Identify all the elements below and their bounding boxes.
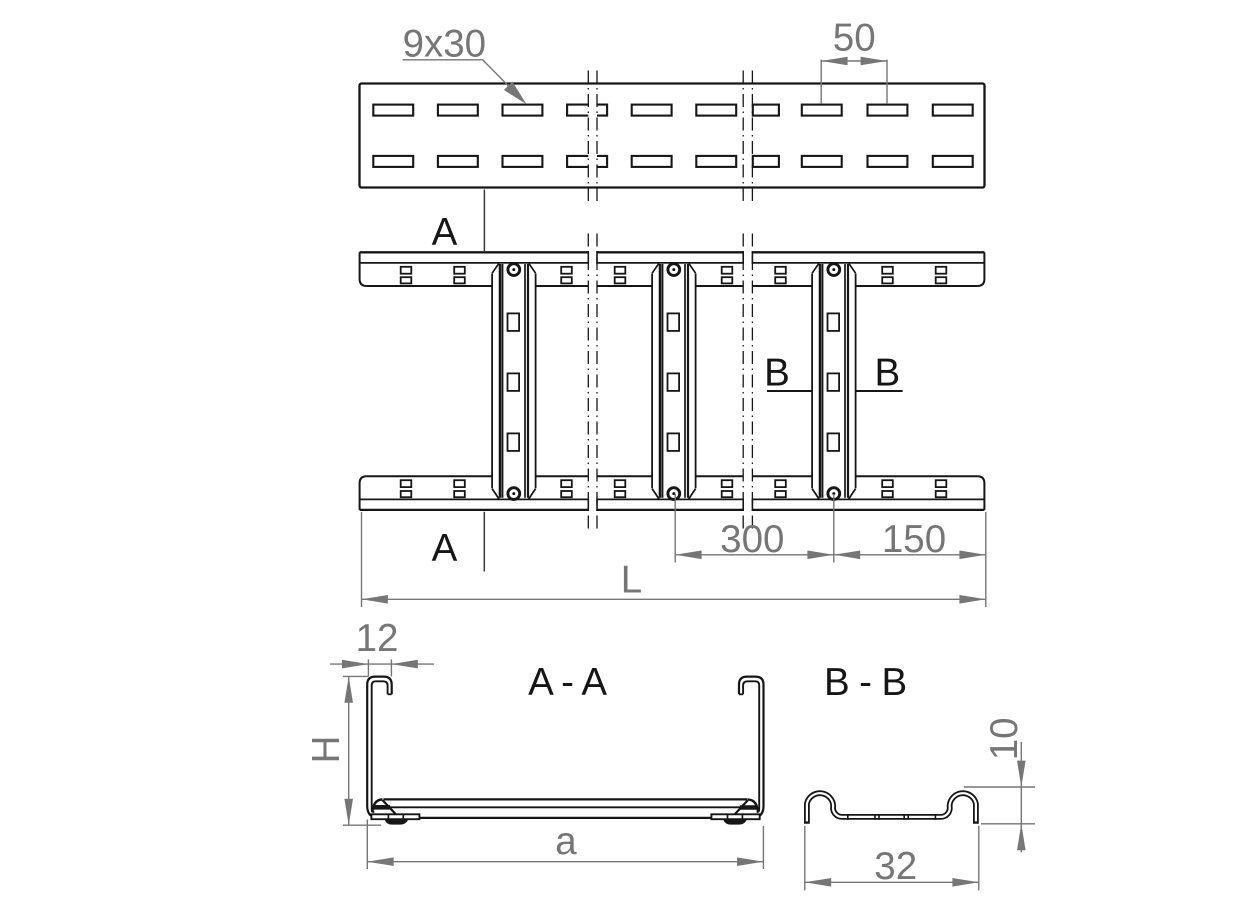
svg-text:300: 300 bbox=[720, 518, 784, 561]
svg-text:9x30: 9x30 bbox=[403, 23, 487, 66]
svg-text:A - A: A - A bbox=[528, 661, 607, 704]
svg-text:a: a bbox=[555, 820, 577, 863]
svg-text:B: B bbox=[874, 352, 900, 395]
svg-text:12: 12 bbox=[356, 617, 399, 660]
svg-text:L: L bbox=[621, 559, 642, 602]
svg-text:10: 10 bbox=[983, 717, 1026, 760]
svg-text:B - B: B - B bbox=[824, 661, 907, 704]
svg-text:32: 32 bbox=[874, 845, 917, 888]
svg-text:A: A bbox=[432, 527, 458, 570]
svg-text:50: 50 bbox=[833, 17, 876, 60]
svg-text:H: H bbox=[305, 736, 348, 764]
svg-text:B: B bbox=[764, 352, 790, 395]
svg-text:A: A bbox=[432, 211, 458, 254]
svg-text:150: 150 bbox=[882, 518, 946, 561]
